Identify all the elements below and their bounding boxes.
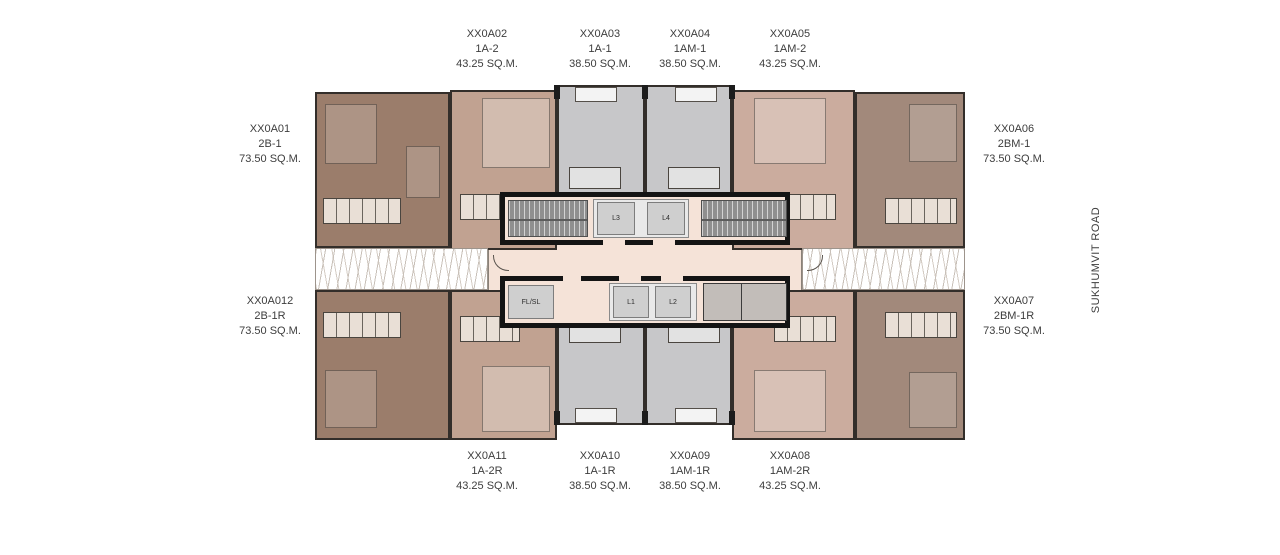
unit-code: XX0A07 (983, 294, 1045, 309)
unit-block-2b-1r (315, 290, 450, 440)
unit-code: XX0A09 (659, 449, 721, 464)
floor-plan-page: L3 L4 FL/SL L1 L2 (0, 0, 1280, 555)
unit-label-xx0a02: XX0A02 1A-2 43.25 SQ.M. (456, 27, 518, 72)
road-label: SUKHUMVIT ROAD (1090, 195, 1104, 325)
unit-label-xx0a01: XX0A01 2B-1 73.50 SQ.M. (239, 122, 301, 167)
door-gap (619, 276, 641, 281)
unit-code: XX0A11 (456, 449, 518, 464)
wall-stub (554, 411, 560, 425)
core-lower-band: FL/SL L1 L2 (500, 276, 790, 328)
unit-label-xx0a09: XX0A09 1AM-1R 38.50 SQ.M. (659, 449, 721, 494)
unit-type: 2B-1R (239, 309, 301, 324)
unit-code: XX0A06 (983, 122, 1045, 137)
unit-code: XX0A08 (759, 449, 821, 464)
unit-type: 1AM-2 (759, 42, 821, 57)
balcony-band-left (315, 248, 488, 290)
service-room (703, 283, 787, 321)
unit-code: XX0A012 (239, 294, 301, 309)
unit-label-xx0a012: XX0A012 2B-1R 73.50 SQ.M. (239, 294, 301, 339)
unit-area: 38.50 SQ.M. (569, 479, 631, 494)
unit-area: 43.25 SQ.M. (759, 57, 821, 72)
lift-l1-label: L1 (627, 299, 635, 306)
unit-block-1am-1 (645, 85, 732, 195)
floor-plan: L3 L4 FL/SL L1 L2 (315, 85, 965, 440)
unit-block-1am-1r (645, 315, 732, 425)
fire-service-lift: FL/SL (508, 285, 554, 319)
unit-type: 1A-2 (456, 42, 518, 57)
unit-code: XX0A02 (456, 27, 518, 42)
unit-area: 43.25 SQ.M. (456, 479, 518, 494)
unit-label-xx0a08: XX0A08 1AM-2R 43.25 SQ.M. (759, 449, 821, 494)
unit-type: 1A-1R (569, 464, 631, 479)
unit-label-xx0a04: XX0A04 1AM-1 38.50 SQ.M. (659, 27, 721, 72)
unit-type: 1A-2R (456, 464, 518, 479)
unit-code: XX0A01 (239, 122, 301, 137)
door-gap (603, 240, 625, 245)
unit-area: 38.50 SQ.M. (569, 57, 631, 72)
unit-area: 43.25 SQ.M. (456, 57, 518, 72)
wall-stub (642, 411, 648, 425)
lift-l1: L1 (613, 286, 649, 318)
unit-block-1a-1 (557, 85, 645, 195)
lift-l4-label: L4 (662, 215, 670, 222)
lift-l4: L4 (647, 202, 685, 235)
unit-block-2b-1 (315, 92, 450, 248)
unit-label-xx0a05: XX0A05 1AM-2 43.25 SQ.M. (759, 27, 821, 72)
door-gap (661, 276, 683, 281)
unit-type: 1AM-2R (759, 464, 821, 479)
unit-type: 1AM-1R (659, 464, 721, 479)
unit-area: 73.50 SQ.M. (983, 152, 1045, 167)
wall-stub (729, 85, 735, 99)
unit-area: 73.50 SQ.M. (983, 324, 1045, 339)
unit-label-xx0a10: XX0A10 1A-1R 38.50 SQ.M. (569, 449, 631, 494)
unit-code: XX0A04 (659, 27, 721, 42)
unit-code: XX0A03 (569, 27, 631, 42)
stairwell-right (701, 200, 787, 237)
wall-stub (554, 85, 560, 99)
unit-area: 73.50 SQ.M. (239, 152, 301, 167)
unit-label-xx0a03: XX0A03 1A-1 38.50 SQ.M. (569, 27, 631, 72)
wall-stub (729, 411, 735, 425)
unit-label-xx0a07: XX0A07 2BM-1R 73.50 SQ.M. (983, 294, 1045, 339)
unit-block-1a-1r (557, 315, 645, 425)
unit-type: 1A-1 (569, 42, 631, 57)
lift-l3: L3 (597, 202, 635, 235)
unit-area: 38.50 SQ.M. (659, 479, 721, 494)
core-upper-band: L3 L4 (500, 192, 790, 245)
lift-l3-label: L3 (612, 215, 620, 222)
wall-stub (642, 85, 648, 99)
unit-code: XX0A10 (569, 449, 631, 464)
fire-service-lift-label: FL/SL (522, 299, 541, 306)
unit-area: 43.25 SQ.M. (759, 479, 821, 494)
door-gap (563, 276, 581, 281)
unit-type: 2BM-1R (983, 309, 1045, 324)
lift-l2-label: L2 (669, 299, 677, 306)
unit-type: 2BM-1 (983, 137, 1045, 152)
unit-area: 73.50 SQ.M. (239, 324, 301, 339)
unit-block-2bm-1 (855, 92, 965, 248)
unit-block-2bm-1r (855, 290, 965, 440)
stairwell-left (508, 200, 588, 237)
unit-type: 2B-1 (239, 137, 301, 152)
unit-area: 38.50 SQ.M. (659, 57, 721, 72)
unit-label-xx0a11: XX0A11 1A-2R 43.25 SQ.M. (456, 449, 518, 494)
lift-l2: L2 (655, 286, 691, 318)
unit-label-xx0a06: XX0A06 2BM-1 73.50 SQ.M. (983, 122, 1045, 167)
unit-type: 1AM-1 (659, 42, 721, 57)
unit-code: XX0A05 (759, 27, 821, 42)
door-gap (653, 240, 675, 245)
balcony-band-right (802, 248, 965, 290)
